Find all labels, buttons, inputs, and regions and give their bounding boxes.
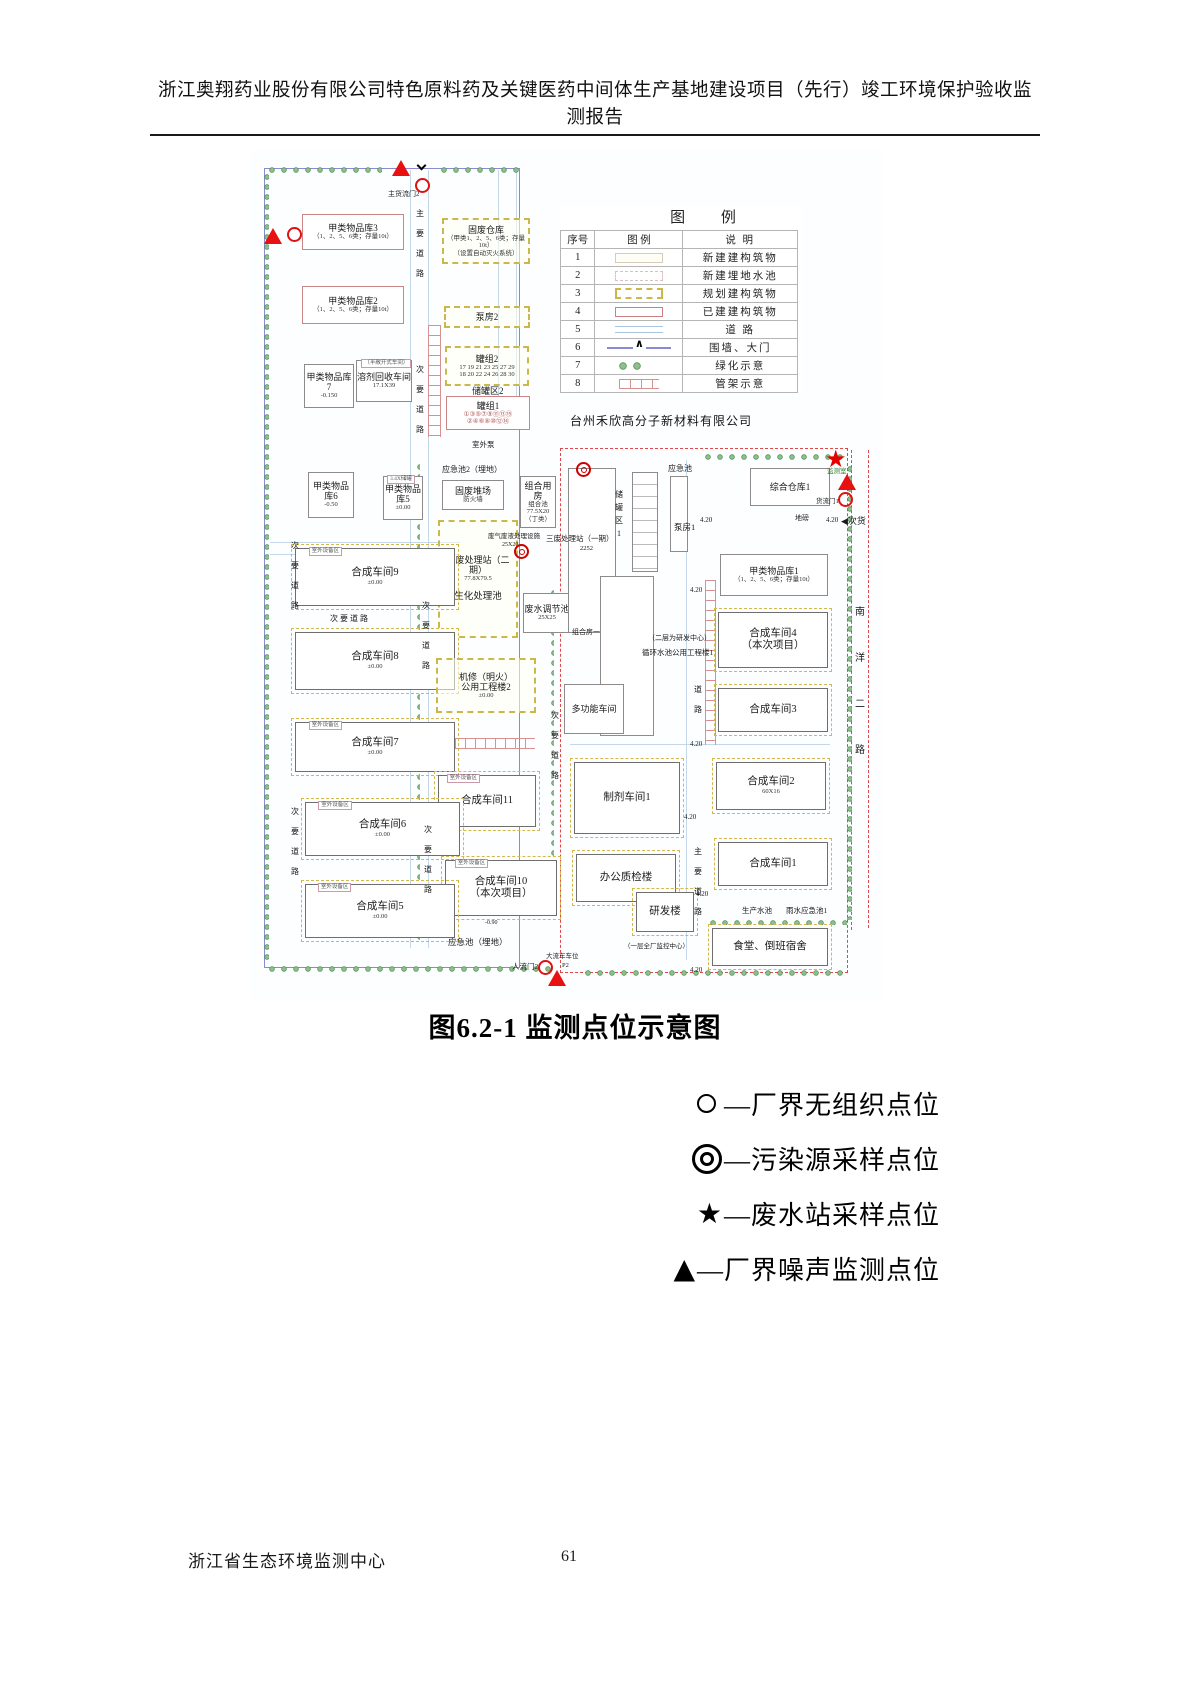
legend-header-cell: 序号 (561, 231, 595, 249)
circle-icon (697, 1094, 722, 1113)
building-label: 固废仓库 (468, 225, 504, 235)
building-label: 合成车间5 (356, 901, 403, 913)
legend-desc-cell: 新建建构筑物 (683, 249, 798, 267)
building: （半敞开式车间）溶剂回收车间17.1X39 (356, 360, 412, 402)
legend-row: 7绿化示意 (561, 357, 798, 375)
legend-row: 8管架示意 (561, 375, 798, 393)
legend-swatch-cell (595, 285, 683, 303)
star-glyph: ★ (697, 1200, 722, 1228)
legend-swatch-cell (595, 357, 683, 375)
building-sublabel: ±0.00 (368, 749, 383, 756)
building-sublabel: （1、2、5、6类；存量10t） (734, 576, 814, 583)
building-label: 甲类物品库3 (328, 223, 378, 233)
building-label: 罐组1 (477, 401, 500, 411)
map-label: 雨水应急池1 (786, 906, 827, 915)
map-label: 4.20 (690, 966, 702, 974)
building-label: 机修（明火） (459, 672, 513, 682)
building-sublabel: （丁类） (525, 516, 551, 523)
legend-no-cell: 4 (561, 303, 595, 321)
building-sublabel: ±0.00 (373, 913, 388, 920)
map-label: 主 要 道 路 (691, 842, 705, 922)
point-legend-item: —厂界无组织点位 (673, 1076, 940, 1131)
building-label: 研发楼 (649, 906, 681, 918)
map-label: 4.20 (690, 586, 702, 594)
building (670, 476, 688, 552)
map-label: 次 要 道 路 (288, 802, 302, 882)
map-legend: 图 例 序号图 例说 明1新建建构筑物2新建埋地水池3规划建构筑物4已建建构筑物… (560, 206, 802, 393)
inner-ring (519, 549, 525, 555)
building-label: 综合仓库1 (770, 482, 811, 492)
point-legend-label: —污染源采样点位 (724, 1140, 940, 1177)
greenery-hedge (580, 966, 848, 976)
map-label: 次 要 道 路 (413, 360, 427, 440)
greenery-swatch (615, 361, 663, 371)
building (632, 472, 658, 572)
building: 固废堆场防火墙 (442, 480, 504, 510)
map-label: 道 路 (691, 680, 705, 720)
building-label: 合成车间7 (351, 737, 398, 749)
map-label: 主 要 道 路 (413, 204, 427, 284)
map-label: 南 洋 二 路 (853, 590, 867, 774)
page-header: 浙江奥翔药业股份有限公司特色原料药及关键医药中间体生产基地建设项目（先行）竣工环… (145, 78, 1045, 132)
map-label: 次 要 道 路 (419, 596, 433, 676)
existing-building-swatch (615, 307, 663, 317)
building: 罐组217 19 21 23 25 27 2918 20 22 24 26 28… (445, 346, 529, 386)
point-legend-item: ★—废水站采样点位 (673, 1186, 940, 1241)
map-label: 4.20 (826, 516, 838, 524)
building: 废水调节池25X25 (523, 593, 571, 633)
building-sublabel: 25X25 (538, 614, 556, 621)
map-label: 组合房一 (572, 628, 600, 636)
wastewater-star-marker: ★ (825, 448, 847, 472)
greenery-hedge (436, 163, 520, 173)
building-sublabel: -0.150 (321, 392, 338, 399)
map-label: 应急池（埋地） (448, 937, 508, 947)
legend-swatch-cell (595, 267, 683, 285)
building: 机修（明火）公用工程楼2±0.00 (436, 658, 536, 713)
point-legend-item: —污染源采样点位 (673, 1131, 940, 1186)
legend-header-row: 序号图 例说 明 (561, 231, 798, 249)
building: 研发楼 (636, 892, 694, 932)
map-label: 大流车车位 (546, 953, 579, 961)
building-sublabel: -0.50 (324, 501, 338, 508)
map-label: 次 要 道 路 (421, 820, 435, 900)
legend-no-cell: 3 (561, 285, 595, 303)
map-label: 应急池2（埋地） (442, 465, 502, 475)
legend-desc-cell: 规划建构筑物 (683, 285, 798, 303)
legend-no-cell: 8 (561, 375, 595, 393)
building: 食堂、倒班宿舍 (712, 928, 828, 966)
plot-boundary (868, 450, 869, 928)
legend-desc-cell: 道 路 (683, 321, 798, 339)
map-label: 2252 (580, 545, 593, 553)
map-label: 储罐区2 (472, 386, 504, 397)
double-circle-glyph (692, 1144, 722, 1174)
map-label: 应急池 (668, 464, 692, 474)
greenery-hedge (259, 170, 269, 962)
site-plan-map: 图 例 序号图 例说 明1新建建构筑物2新建埋地水池3规划建构筑物4已建建构筑物… (250, 150, 882, 1000)
building-sublabel: 18 20 22 24 26 28 30 (459, 371, 514, 378)
map-label: 泵房1 (674, 522, 695, 532)
point-legend-label: —废水站采样点位 (724, 1195, 940, 1232)
building: 组合用房组合池77.5X20（丁类） (520, 476, 556, 528)
header-divider (150, 134, 1040, 136)
building-label: 甲类物品库5 (384, 484, 422, 504)
noise-monitoring-triangle-marker (838, 474, 856, 490)
building-label: 溶剂回收车间 (357, 372, 411, 382)
building-zone-label: 室外设备区 (447, 774, 481, 783)
building-sublabel: （1、2、5、6类；存量10t） (313, 306, 393, 313)
building-zone-label: 3.4X储罐 (387, 475, 415, 484)
greenery-hedge (842, 462, 852, 920)
legend-header-cell: 说 明 (683, 231, 798, 249)
legend-row: 6围墙、大门 (561, 339, 798, 357)
building-label: （本次项目） (742, 640, 805, 652)
building: 甲类物品库2（1、2、5、6类；存量10t） (302, 286, 404, 324)
map-label: （二层为研发中心） (648, 634, 711, 642)
building: 室外设备区合成车间7±0.00 (295, 722, 455, 772)
legend-no-cell: 7 (561, 357, 595, 375)
legend-row: 3规划建构筑物 (561, 285, 798, 303)
building: 合成车间4（本次项目） (718, 612, 828, 668)
map-label: （一层全厂监控中心） (624, 943, 689, 951)
star-icon: ★ (697, 1200, 722, 1228)
legend-no-cell: 2 (561, 267, 595, 285)
noise-monitoring-triangle-marker (392, 160, 410, 176)
building-label: 固废堆场 (455, 486, 491, 496)
point-type-legend: —厂界无组织点位—污染源采样点位★—废水站采样点位▲—厂界噪声监测点位 (673, 1076, 940, 1296)
building-label: 合成车间2 (747, 776, 794, 788)
building-label: 合成车间8 (351, 651, 398, 663)
inner-ring (581, 467, 587, 473)
building: 多功能车间 (564, 684, 624, 734)
legend-title: 图 例 (620, 206, 802, 227)
legend-row: 2新建埋地水池 (561, 267, 798, 285)
map-label: 4.20 (700, 516, 712, 524)
triangle-icon: ▲ (673, 1255, 695, 1283)
building-sublabel: （甲类1、2、5、6类；存量10t） (444, 235, 528, 250)
map-label: -0.90 (485, 920, 498, 927)
building-label: 制剂车间1 (603, 792, 650, 804)
building: 罐组1①③⑤⑦⑨⑪⑬⑮②④⑥⑧⑩⑫⑭ (446, 396, 530, 430)
map-label: 储 罐 区 1 (612, 488, 626, 540)
building-sublabel: 77.8X79.5 (464, 575, 491, 582)
building-label: 甲类物品库6 (309, 481, 353, 501)
map-label: 废气废液处理设施 (488, 533, 540, 541)
pipe-rack (705, 580, 716, 745)
building-label: 废水调节池 (524, 604, 569, 614)
building-zone-label: （半敞开式车间） (361, 359, 411, 368)
wall-gate-swatch (615, 342, 663, 354)
building: 甲类物品库1（1、2、5、6类；存量10t） (720, 554, 828, 596)
building-label: 合成车间4 (749, 628, 796, 640)
legend-swatch-cell (595, 321, 683, 339)
building-label: 公用工程楼2 (461, 682, 511, 692)
road-swatch (615, 326, 663, 333)
planned-building-swatch (615, 288, 663, 299)
building-zone-label: 室外设备区 (309, 547, 343, 556)
legend-desc-cell: 围墙、大门 (683, 339, 798, 357)
building-label: 甲类物品库1 (749, 566, 799, 576)
building-sublabel: （设置自动灭火系统） (454, 250, 519, 257)
building-sublabel: （1、2、5、6类；存量10t） (313, 233, 393, 240)
map-label: 地磅 (795, 514, 809, 522)
building-label: 合成车间6 (359, 819, 406, 831)
building-label: 办公质检楼 (600, 872, 653, 884)
new-building-swatch (615, 253, 663, 263)
building: 合成车间1 (718, 842, 828, 886)
legend-swatch-cell (595, 339, 683, 357)
header-line2: 测报告 (145, 105, 1045, 132)
new-buried-pool-swatch (615, 271, 663, 281)
building-label: 合成车间11 (461, 795, 513, 807)
building: 固废仓库（甲类1、2、5、6类；存量10t）（设置自动灭火系统） (442, 218, 530, 264)
building-sublabel: 17 19 21 23 25 27 29 (459, 364, 514, 371)
building: 合成车间3 (718, 688, 828, 732)
legend-row: 4已建建构筑物 (561, 303, 798, 321)
legend-no-cell: 5 (561, 321, 595, 339)
map-label: ◀次货 (841, 516, 866, 527)
building-sublabel: 17.1X39 (373, 382, 396, 389)
greenery-hedge (705, 916, 847, 925)
legend-row: 1新建建构筑物 (561, 249, 798, 267)
building: 制剂车间1 (574, 762, 680, 834)
legend-swatch-cell (595, 375, 683, 393)
building-label: 合成车间9 (351, 567, 398, 579)
building-zone-label: 室外设备区 (318, 801, 352, 810)
building-sublabel: 防火墙 (463, 496, 483, 503)
building-sublabel: 77.5X20 (527, 508, 550, 515)
triangle-glyph: ▲ (673, 1255, 695, 1283)
building-label: 生化处理池 (454, 592, 502, 603)
figure-caption: 图6.2-1 监测点位示意图 (0, 1006, 1150, 1045)
fugitive-point-circle-marker (287, 227, 302, 242)
building-label: 食堂、倒班宿舍 (733, 941, 807, 953)
legend-swatch-cell (595, 303, 683, 321)
legend-desc-cell: 新建埋地水池 (683, 267, 798, 285)
building-sublabel: ±0.00 (368, 579, 383, 586)
noise-monitoring-triangle-marker (264, 228, 282, 244)
building-label: 泵房2 (476, 312, 499, 322)
map-label: 次 要 道 路 (330, 614, 368, 624)
building-label: 罐组2 (476, 354, 499, 364)
report-page: 浙江奥翔药业股份有限公司特色原料药及关键医药中间体生产基地建设项目（先行）竣工环… (0, 0, 1190, 1683)
map-label: 主货流门2 (388, 190, 420, 198)
building-sublabel: ①③⑤⑦⑨⑪⑬⑮ (464, 411, 513, 418)
legend-no-cell: 6 (561, 339, 595, 357)
map-label: 货流门1 (816, 498, 839, 506)
header-line1: 浙江奥翔药业股份有限公司特色原料药及关键医药中间体生产基地建设项目（先行）竣工环… (145, 78, 1045, 105)
page-number: 61 (561, 1548, 577, 1566)
map-label: 次 要 道 路 (288, 536, 302, 616)
footer-organization: 浙江省生态环境监测中心 (188, 1547, 386, 1572)
map-label: 次 要 道 路 (548, 706, 562, 786)
greenery-hedge (264, 163, 382, 173)
building-zone-label: 室外设备区 (318, 883, 352, 892)
point-legend-item: ▲—厂界噪声监测点位 (673, 1241, 940, 1296)
building-sublabel: ②④⑥⑧⑩⑫⑭ (467, 418, 509, 425)
legend-desc-cell: 绿化示意 (683, 357, 798, 375)
pollution-source-double-circle-marker (576, 462, 591, 477)
building: 泵房2 (444, 306, 530, 328)
building-label: 甲类物品库7 (305, 372, 353, 392)
building-zone-label: 室外设备区 (455, 859, 489, 868)
building: 合成车间260X16 (716, 762, 826, 810)
greenery-hedge (412, 460, 420, 940)
building-sublabel: ±0.00 (375, 831, 390, 838)
map-label: 4.20 (684, 813, 696, 821)
map-label: 生产水池 (742, 906, 772, 915)
point-legend-label: —厂界噪声监测点位 (697, 1250, 940, 1287)
map-label: 4.20 (690, 740, 702, 748)
building-label: 合成车间1 (749, 858, 796, 870)
building-label: 合成车间3 (749, 704, 796, 716)
neighbor-company-label: 台州禾欣高分子新材料有限公司 (570, 412, 830, 429)
building-label: 合成车间10 (475, 876, 528, 888)
building-label: 多功能车间 (571, 704, 616, 714)
building-sublabel: ±0.00 (479, 692, 494, 699)
map-label: 人流门2 (512, 962, 538, 971)
fugitive-point-circle-marker (838, 492, 853, 507)
building-zone-label: 室外设备区 (309, 721, 343, 730)
point-legend-label: —厂界无组织点位 (724, 1085, 940, 1122)
double-circle-icon (692, 1144, 722, 1174)
building-label: （本次项目） (470, 888, 533, 900)
pipe-rack-swatch (619, 379, 659, 389)
map-label: 三废处理站（一期） (546, 534, 614, 543)
building-label: 组合用房 (521, 481, 555, 501)
building-sublabel: ±0.00 (396, 504, 411, 511)
legend-desc-cell: 管架示意 (683, 375, 798, 393)
fugitive-point-circle-marker (415, 178, 430, 193)
building: 室外设备区合成车间10（本次项目） (445, 860, 557, 916)
legend-swatch-cell (595, 249, 683, 267)
legend-no-cell: 1 (561, 249, 595, 267)
map-label: 室外泵 (472, 440, 495, 449)
building: 室外设备区合成车间6±0.00 (305, 802, 460, 856)
pipe-rack (428, 325, 441, 437)
map-label: 循环水池公用工程楼1 (642, 648, 713, 657)
building-sublabel: 组合池 (528, 501, 548, 508)
legend-row: 5道 路 (561, 321, 798, 339)
building-sublabel: 60X16 (762, 788, 780, 795)
legend-header-cell: 图 例 (595, 231, 683, 249)
map-label: P2 (562, 962, 569, 970)
pollution-source-double-circle-marker (514, 544, 529, 559)
building: 3.4X储罐甲类物品库5±0.00 (383, 476, 423, 520)
inner-ring (700, 1152, 714, 1166)
map-label: 4.20 (696, 890, 708, 898)
building: 甲类物品库6-0.50 (308, 472, 354, 518)
building-label: 甲类物品库2 (328, 296, 378, 306)
legend-table: 序号图 例说 明1新建建构筑物2新建埋地水池3规划建构筑物4已建建构筑物5道 路… (560, 230, 798, 393)
legend-desc-cell: 已建建构筑物 (683, 303, 798, 321)
building: 甲类物品库3（1、2、5、6类；存量10t） (302, 214, 404, 250)
building-sublabel: ±0.00 (368, 663, 383, 670)
building: 甲类物品库7-0.150 (304, 364, 354, 408)
noise-monitoring-triangle-marker (548, 970, 566, 986)
circle-glyph (697, 1094, 716, 1113)
